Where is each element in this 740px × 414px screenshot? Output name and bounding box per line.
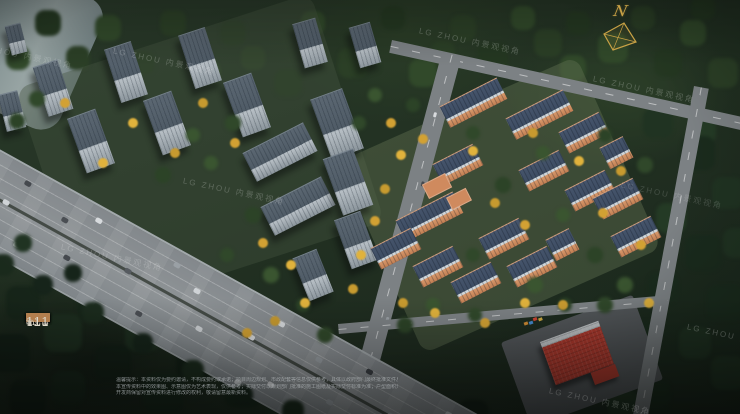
building-body — [478, 218, 529, 260]
residential-tower — [223, 73, 271, 138]
building-body — [599, 136, 633, 169]
residential-tower — [292, 18, 328, 69]
building-body — [439, 77, 507, 127]
aerial-masterplan-rendering: LG ZHOU 内景观视角 LG ZHOU 内景观视角 LG ZHOU 内景观视… — [0, 0, 740, 414]
residential-tower — [260, 176, 335, 235]
new-building-with-unit-tags — [610, 216, 650, 236]
compass: N — [598, 2, 642, 56]
new-building-with-unit-tags — [545, 228, 568, 240]
residential-tower — [334, 211, 378, 269]
residential-tower — [178, 27, 222, 89]
autumn-trees — [0, 0, 6, 6]
new-building-with-unit-tags — [478, 218, 518, 238]
disclaimer-line: 温馨提示：本资料仅为要约邀请，不构成要约或承诺；项目周边规划、市政配套等信息仅供… — [116, 377, 398, 384]
new-building-with-unit-tags — [432, 144, 472, 164]
compass-north-label: N — [612, 2, 629, 20]
residential-tower — [143, 91, 191, 156]
compass-rose-icon — [600, 20, 640, 54]
residential-tower — [67, 109, 115, 174]
building-body — [370, 228, 421, 270]
new-building-with-unit-tags — [564, 170, 604, 190]
disclaimer-line: 开发商保留对宣传资料进行修改的权利，敬请留意最新资料。 — [116, 390, 398, 397]
new-building-with-unit-tags — [599, 136, 622, 148]
residential-tower — [349, 22, 382, 68]
residential-tower — [292, 249, 333, 301]
residential-tower — [310, 88, 364, 160]
new-building-with-unit-tags — [518, 150, 558, 170]
new-building-with-unit-tags — [506, 246, 546, 266]
legend-unit: m² — [27, 318, 38, 327]
building-body — [518, 150, 569, 192]
new-building-with-unit-tags — [439, 77, 496, 106]
new-building-with-unit-tags — [370, 228, 410, 248]
new-building-with-unit-tags — [395, 191, 452, 220]
building-body — [610, 216, 661, 258]
disclaimer: 温馨提示：本资料仅为要约邀请，不构成要约或承诺；项目周边规划、市政配套等信息仅供… — [116, 377, 398, 397]
building-body — [506, 246, 557, 288]
residential-tower — [0, 90, 26, 132]
buildings-layer — [0, 0, 740, 414]
new-building-with-unit-tags — [505, 89, 562, 118]
